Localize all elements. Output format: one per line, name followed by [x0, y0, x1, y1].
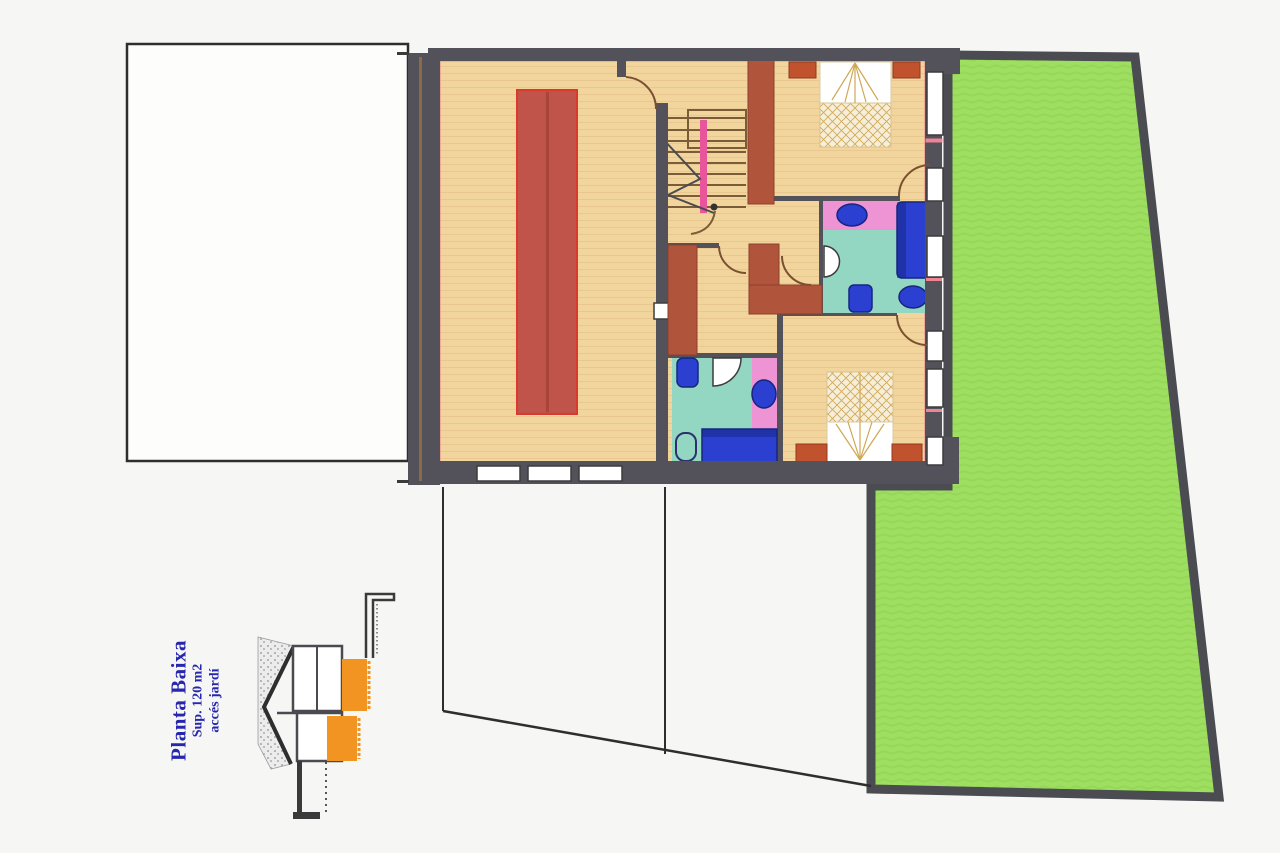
toilet [677, 358, 698, 387]
nightstand [893, 62, 920, 78]
bedroom1-south-wall [774, 196, 900, 201]
entry-door-jamb [617, 59, 626, 77]
toilet [849, 285, 872, 312]
window [927, 369, 943, 407]
window [528, 466, 571, 481]
living-room [517, 90, 577, 414]
west-wall [428, 48, 440, 485]
window [927, 331, 943, 361]
boundary-hedge-line [419, 57, 422, 481]
bedroom2-west-wall [777, 311, 783, 462]
washbasin [752, 380, 776, 408]
hall-wall-west [668, 245, 697, 355]
nightstand [789, 62, 816, 78]
hall-wall-horizontal [749, 285, 822, 314]
bathroom-1 [823, 201, 933, 313]
hall-wall-vertical [749, 244, 779, 288]
window [477, 466, 520, 481]
empty-plot [127, 44, 408, 461]
nightstand [796, 444, 827, 462]
section-highlight-lower [327, 716, 357, 761]
bathtub-edge [702, 429, 777, 437]
house [428, 48, 960, 485]
scanned-floorplan-page: Planta Baixa Sup. 120 m2 accés jardí [0, 0, 1280, 853]
bathroom-2 [672, 358, 777, 462]
section-base [293, 812, 320, 819]
plan-title: Planta Baixa [167, 640, 191, 761]
stair-bedroom1-wall [748, 57, 774, 204]
window [927, 437, 943, 465]
boundary-tick-top [397, 52, 409, 55]
window-jamb [926, 409, 942, 412]
bathtub-edge [897, 202, 906, 278]
plot-division-lines [443, 487, 871, 786]
northeast-corner [925, 48, 960, 74]
window [927, 72, 943, 135]
nightstand [892, 444, 922, 462]
section-drawing [258, 594, 394, 819]
north-wall [428, 48, 942, 61]
stair-handrail-stripe [700, 120, 707, 213]
window-jamb [926, 278, 942, 281]
plan-legend: Planta Baixa Sup. 120 m2 accés jardí [148, 626, 243, 776]
boundary-tick-bottom [397, 480, 409, 483]
plot-line-diagonal [443, 711, 871, 786]
stair-newel-post [711, 204, 718, 211]
bidet [899, 286, 927, 308]
plan-area: Sup. 120 m2 [191, 664, 207, 738]
plan-access: accés jardí [207, 668, 223, 732]
window [579, 466, 622, 481]
bed-spread [820, 103, 891, 147]
window [927, 168, 943, 201]
section-highlight-upper [342, 659, 367, 711]
window-jamb [926, 139, 942, 142]
window [927, 236, 943, 277]
plot-outline [127, 44, 408, 461]
living-hall-wall [656, 103, 668, 462]
washbasin [837, 204, 867, 226]
section-chimney [366, 594, 394, 658]
section-pillar [297, 761, 302, 815]
